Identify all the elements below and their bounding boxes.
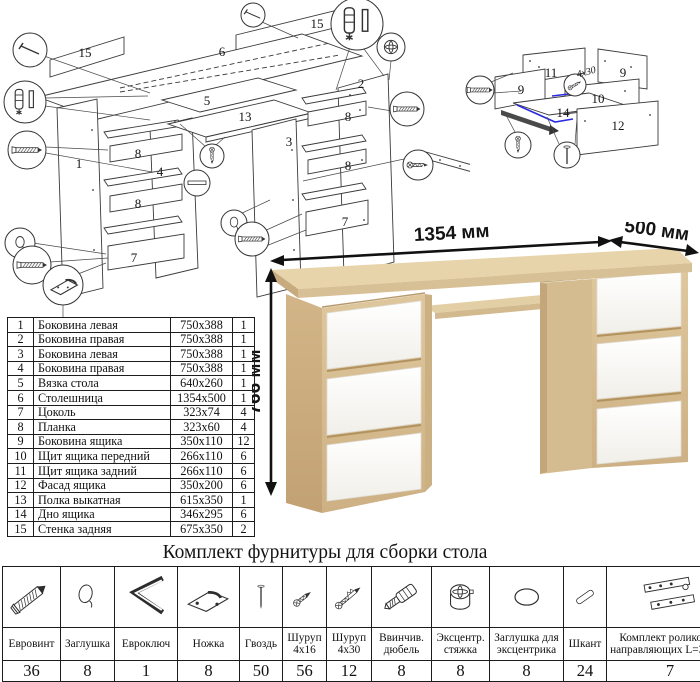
parts-row: 6Столешница1354х5001 <box>8 390 255 405</box>
hardware-item-name: Заглушка <box>61 628 115 661</box>
hardware-item-name: Заглушка для эксцентрика <box>490 628 564 661</box>
cam-lock-callout <box>377 33 405 61</box>
parts-cell-qty: 1 <box>233 493 255 508</box>
parts-row: 7Цоколь323х744 <box>8 405 255 420</box>
parts-cell-num: 14 <box>8 507 34 522</box>
parts-cell-qty: 6 <box>233 463 255 478</box>
nail-callout <box>241 3 265 27</box>
confirmat-callout <box>390 92 424 126</box>
parts-cell-name: Боковина ящика <box>34 434 171 449</box>
parts-cell-size: 346х295 <box>171 507 233 522</box>
parts-cell-qty: 1 <box>233 318 255 333</box>
parts-cell-num: 7 <box>8 405 34 420</box>
hardware-item-qty: 8 <box>432 661 490 682</box>
hardware-item-name: Шуруп 4х16 <box>283 628 327 661</box>
hardware-item-qty: 50 <box>240 661 283 682</box>
hardware-kit-title: Комплект фурнитуры для сборки стола <box>110 542 540 564</box>
parts-cell-name: Полка выкатная <box>34 493 171 508</box>
foot-callout <box>43 265 83 305</box>
dowel-callout <box>331 0 383 50</box>
screw-in-dowel-icon <box>372 567 432 628</box>
parts-cell-num: 8 <box>8 420 34 435</box>
hardware-item-qty: 56 <box>283 661 327 682</box>
parts-cell-name: Дно ящика <box>34 507 171 522</box>
part-label: 15 <box>311 16 324 31</box>
part-label: 8 <box>345 109 352 124</box>
parts-row: 12Фасад ящика350х2006 <box>8 478 255 493</box>
scan-page: { "parts_table": { "rows": [ {"num":"1",… <box>0 0 700 677</box>
nail-callout <box>13 33 47 67</box>
hardware-item-qty: 8 <box>61 661 115 682</box>
slide-callout <box>184 170 210 196</box>
parts-cell-num: 1 <box>8 318 34 333</box>
parts-row: 15Стенка задняя675х3502 <box>8 522 255 537</box>
part-label: 12 <box>612 118 625 133</box>
part-label: 15 <box>79 45 92 60</box>
parts-cell-qty: 1 <box>233 376 255 391</box>
parts-cell-qty: 6 <box>233 449 255 464</box>
parts-cell-qty: 6 <box>233 478 255 493</box>
parts-cell-name: Боковина левая <box>34 347 171 362</box>
parts-row: 11Щит ящика задний266х1106 <box>8 463 255 478</box>
parts-cell-num: 2 <box>8 332 34 347</box>
parts-row: 1Боковина левая750х3881 <box>8 318 255 333</box>
hardware-item-qty: 24 <box>564 661 607 682</box>
hardware-item-name: Комплект роликовых направляющих L=350мм <box>607 628 700 661</box>
hardware-item-name: Шуруп 4х30 <box>327 628 372 661</box>
parts-cell-num: 3 <box>8 347 34 362</box>
parts-row: 10Щит ящика передний266х1106 <box>8 449 255 464</box>
drawer-front <box>597 271 681 334</box>
part-label: 8 <box>135 196 142 211</box>
parts-cell-name: Вязка стола <box>34 376 171 391</box>
parts-cell-num: 12 <box>8 478 34 493</box>
parts-cell-size: 323х60 <box>171 420 233 435</box>
left-pedestal-inner-edge <box>425 294 432 492</box>
hardware-names-row: ЕвровинтЗаглушкаЕвроключНожкаГвоздьШуруп… <box>3 628 700 661</box>
part-label: 2 <box>358 76 365 91</box>
hardware-table: ЕвровинтЗаглушкаЕвроключНожкаГвоздьШуруп… <box>2 566 700 682</box>
part-label: 14 <box>557 105 571 120</box>
hardware-item-qty: 8 <box>178 661 240 682</box>
hardware-item-qty: 8 <box>490 661 564 682</box>
parts-cell-num: 10 <box>8 449 34 464</box>
parts-row: 13Полка выкатная615х3501 <box>8 493 255 508</box>
desk-render: 1354 мм 500 мм 766 мм <box>252 222 700 552</box>
dowel-callout <box>4 81 46 123</box>
parts-cell-name: Боковина левая <box>34 318 171 333</box>
dimension-depth-label: 500 мм <box>623 222 690 245</box>
parts-cell-num: 11 <box>8 463 34 478</box>
part-label: 5 <box>204 93 211 108</box>
parts-cell-size: 750х388 <box>171 361 233 376</box>
parts-row: 3Боковина левая750х3881 <box>8 347 255 362</box>
wood-dowel-icon <box>564 567 607 628</box>
parts-cell-qty: 2 <box>233 522 255 537</box>
drawer-front <box>327 367 421 435</box>
hardware-item-name: Евроключ <box>115 628 178 661</box>
part-label: 8 <box>135 146 142 161</box>
hardware-item-name: Гвоздь <box>240 628 283 661</box>
parts-cell-qty: 6 <box>233 507 255 522</box>
screw-long-icon <box>327 567 372 628</box>
screw-callout <box>505 132 531 158</box>
parts-cell-size: 640х260 <box>171 376 233 391</box>
part-label: 11 <box>545 65 558 80</box>
part-label: 13 <box>239 109 252 124</box>
part-label: 10 <box>592 91 605 106</box>
parts-cell-size: 350х110 <box>171 434 233 449</box>
parts-row: 9Боковина ящика350х11012 <box>8 434 255 449</box>
parts-cell-qty: 1 <box>233 347 255 362</box>
hardware-item-name: Ножка <box>178 628 240 661</box>
parts-cell-qty: 1 <box>233 332 255 347</box>
parts-row: 14Дно ящика346х2956 <box>8 507 255 522</box>
drawer-assembly-diagram: 11 9 9 10 14 12 4х30 <box>455 33 700 205</box>
nail-callout <box>554 142 580 168</box>
right-pedestal <box>540 270 688 474</box>
parts-cell-num: 9 <box>8 434 34 449</box>
parts-table-body: 1Боковина левая750х38812Боковина правая7… <box>8 318 255 537</box>
parts-cell-name: Столешница <box>34 390 171 405</box>
parts-cell-size: 750х388 <box>171 347 233 362</box>
hardware-item-name: Эксцентр. стяжка <box>432 628 490 661</box>
nail-icon <box>240 567 283 628</box>
part-label: 9 <box>620 65 627 80</box>
part-label: 1 <box>76 156 83 171</box>
parts-cell-size: 675х350 <box>171 522 233 537</box>
parts-cell-size: 323х74 <box>171 405 233 420</box>
cam-lock-icon <box>432 567 490 628</box>
part-label: 7 <box>131 250 138 265</box>
hardware-item-name: Шкант <box>564 628 607 661</box>
hardware-item-name: Евровинт <box>3 628 61 661</box>
screw-small-icon <box>283 567 327 628</box>
parts-cell-size: 266х110 <box>171 463 233 478</box>
dimension-width-label: 1354 мм <box>413 222 490 246</box>
parts-cell-qty: 12 <box>233 434 255 449</box>
parts-cell-qty: 4 <box>233 420 255 435</box>
confirmat-callout <box>8 131 46 169</box>
parts-cell-name: Боковина правая <box>34 332 171 347</box>
parts-row: 5Вязка стола640х2601 <box>8 376 255 391</box>
left-pedestal <box>286 293 425 513</box>
hardware-item-qty: 1 <box>115 661 178 682</box>
parts-cell-name: Фасад ящика <box>34 478 171 493</box>
parts-row: 2Боковина правая750х3881 <box>8 332 255 347</box>
cam-cap-icon <box>490 567 564 628</box>
hardware-item-qty: 8 <box>372 661 432 682</box>
parts-cell-size: 266х110 <box>171 449 233 464</box>
parts-cell-name: Боковина правая <box>34 361 171 376</box>
parts-table: 1Боковина левая750х38812Боковина правая7… <box>7 317 255 537</box>
screw-callout <box>403 150 433 180</box>
parts-cell-name: Цоколь <box>34 405 171 420</box>
parts-cell-num: 4 <box>8 361 34 376</box>
hardware-item-name: Ввинчив. дюбель <box>372 628 432 661</box>
parts-cell-name: Стенка задняя <box>34 522 171 537</box>
hardware-item-qty: 36 <box>3 661 61 682</box>
parts-cell-qty: 1 <box>233 361 255 376</box>
drawer-front <box>327 433 421 501</box>
parts-cell-num: 15 <box>8 522 34 537</box>
part-label: 3 <box>286 134 293 149</box>
confirmat-screw-icon <box>3 567 61 628</box>
cap-icon <box>61 567 115 628</box>
drawer-front <box>327 301 421 369</box>
hardware-qty-row: 36818505612888247 <box>3 661 700 682</box>
parts-cell-size: 1354х500 <box>171 390 233 405</box>
foot-icon <box>178 567 240 628</box>
drawer-front <box>597 336 681 399</box>
hardware-item-qty: 7 <box>607 661 700 682</box>
hardware-icons-row <box>3 567 700 628</box>
parts-cell-num: 6 <box>8 390 34 405</box>
confirmat-callout <box>466 76 494 104</box>
drawer-front <box>597 401 681 464</box>
parts-cell-size: 750х388 <box>171 318 233 333</box>
parts-cell-size: 615х350 <box>171 493 233 508</box>
part-label: 9 <box>518 82 525 97</box>
drawer-slides-icon <box>607 567 700 628</box>
parts-cell-size: 350х200 <box>171 478 233 493</box>
pedestal-side <box>286 294 322 513</box>
part-label: 4 <box>157 164 164 179</box>
parts-cell-name: Щит ящика задний <box>34 463 171 478</box>
parts-cell-qty: 4 <box>233 405 255 420</box>
pedestal-side <box>540 279 592 474</box>
parts-cell-name: Планка <box>34 420 171 435</box>
parts-cell-num: 5 <box>8 376 34 391</box>
parts-row: 4Боковина правая750х3881 <box>8 361 255 376</box>
parts-cell-name: Щит ящика передний <box>34 449 171 464</box>
part-label: 8 <box>345 158 352 173</box>
parts-cell-num: 13 <box>8 493 34 508</box>
parts-cell-qty: 1 <box>233 390 255 405</box>
screw-callout <box>200 144 224 168</box>
part-label: 6 <box>219 44 226 59</box>
dimension-height-arrow <box>265 268 277 496</box>
hardware-item-qty: 12 <box>327 661 372 682</box>
parts-row: 8Планка323х604 <box>8 420 255 435</box>
parts-cell-size: 750х388 <box>171 332 233 347</box>
hex-key-icon <box>115 567 178 628</box>
